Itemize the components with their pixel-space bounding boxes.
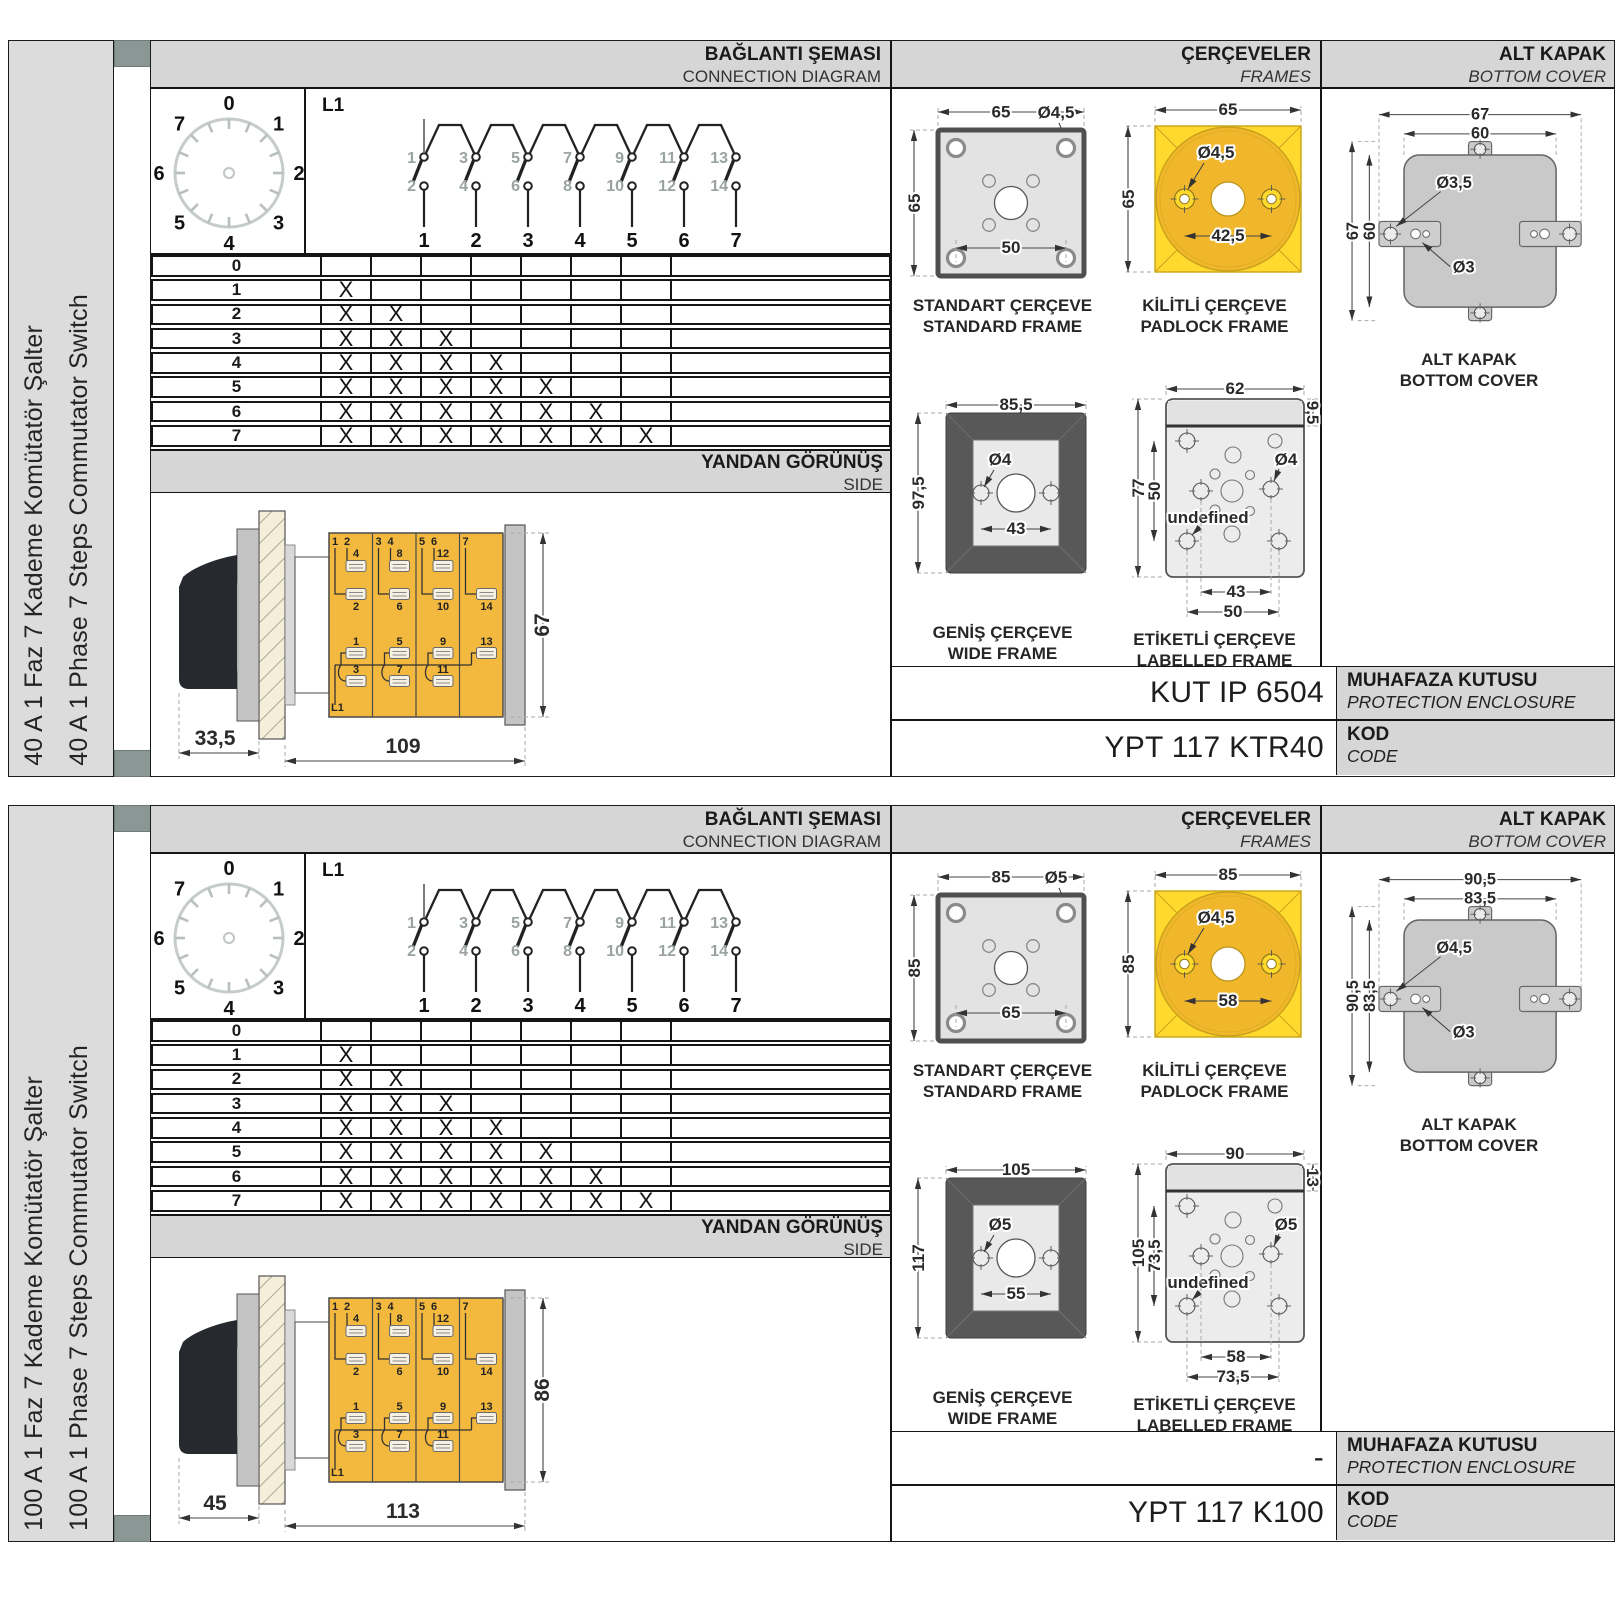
step-cell: X <box>370 354 420 372</box>
step-cell <box>620 1168 670 1186</box>
svg-text:6: 6 <box>396 1366 402 1378</box>
svg-text:Ø3: Ø3 <box>1453 1023 1475 1041</box>
product-name-en: 100 A 1 Phase 7 Steps Commutator Switch <box>65 1045 94 1531</box>
step-cell: X <box>520 403 570 421</box>
svg-text:90,5: 90,5 <box>1464 870 1496 888</box>
enclosure-row: KUT IP 6504 MUHAFAZA KUTUSU PROTECTION E… <box>891 667 1615 721</box>
svg-text:1: 1 <box>332 1301 338 1313</box>
wide-frame-block: 85,597,5Ø443 GENİŞ ÇERÇEVEWIDE FRAME <box>896 391 1109 664</box>
svg-text:62: 62 <box>1226 379 1245 398</box>
switch-dial: 01234567 <box>151 89 306 253</box>
step-row: 5XXXXX <box>151 376 891 398</box>
step-row: 1X <box>151 279 891 301</box>
circuit-schematic: L112134256378491051112613147 <box>306 89 891 253</box>
caption-padlock-en: PADLOCK FRAME <box>1108 1081 1321 1102</box>
svg-text:6: 6 <box>431 536 437 548</box>
caption-standard-tr: STANDART ÇERÇEVE <box>896 295 1109 316</box>
header-connection: BAĞLANTI ŞEMASI CONNECTION DIAGRAM <box>151 41 891 89</box>
svg-text:5: 5 <box>174 978 185 1000</box>
svg-text:L1: L1 <box>322 95 345 116</box>
step-cell: X <box>320 1071 370 1089</box>
steps-table: 01X2XX3XXX4XXXX5XXXXX6XXXXXX7XXXXXXX <box>151 1020 891 1214</box>
side-view-band-tr: YANDAN GÖRÜNÜŞ <box>151 452 883 474</box>
step-cell <box>620 1071 670 1089</box>
caption-wide-en: WIDE FRAME <box>896 643 1109 664</box>
svg-text:85: 85 <box>905 959 924 978</box>
step-cell: X <box>620 1192 670 1210</box>
wide-frame-svg: 85,597,5Ø443 <box>896 391 1111 615</box>
step-cell: X <box>520 378 570 396</box>
code-row: YPT 117 K100 KOD CODE <box>891 1486 1615 1540</box>
step-cell-empty <box>670 1022 889 1040</box>
svg-text:L1: L1 <box>331 1467 344 1479</box>
step-cell: X <box>620 427 670 445</box>
step-cell-empty <box>670 378 889 396</box>
step-cell <box>520 1119 570 1137</box>
step-cell <box>570 306 620 324</box>
svg-text:5: 5 <box>396 636 402 648</box>
bottom-cover-svg: 90,583,590,583,5Ø4,5Ø3 <box>1327 864 1611 1107</box>
step-label: 6 <box>153 1168 320 1186</box>
svg-text:Ø3,5: Ø3,5 <box>1436 174 1471 192</box>
svg-text:3: 3 <box>459 915 468 932</box>
step-cell: X <box>470 1192 520 1210</box>
svg-text:6: 6 <box>678 995 689 1017</box>
code-label-en: CODE <box>1347 1511 1615 1532</box>
svg-text:7: 7 <box>174 114 185 136</box>
step-cell-empty <box>670 330 889 348</box>
side-view-drawing: 12421334865756121091171413L18645113 <box>151 1258 891 1541</box>
step-cell: X <box>320 330 370 348</box>
caption-wide-en: WIDE FRAME <box>896 1408 1109 1429</box>
bottom-cover-block: 67606760Ø3,5Ø3 ALT KAPAKBOTTOM COVER <box>1327 99 1611 391</box>
svg-text:85: 85 <box>1119 955 1138 974</box>
step-label: 0 <box>153 257 320 275</box>
svg-text:3: 3 <box>459 150 468 167</box>
code-label: KOD CODE <box>1336 721 1615 775</box>
header-connection: BAĞLANTI ŞEMASI CONNECTION DIAGRAM <box>151 806 891 854</box>
svg-text:Ø4,5: Ø4,5 <box>1038 103 1075 122</box>
svg-text:undefined: undefined <box>1167 508 1248 527</box>
step-cell: X <box>470 378 520 396</box>
side-view-band-en: SIDE <box>151 1240 883 1260</box>
svg-text:8: 8 <box>396 1313 402 1325</box>
svg-text:4: 4 <box>459 178 468 195</box>
standard-frame-block: 85Ø58565 STANDART ÇERÇEVESTANDARD FRAME <box>896 861 1109 1102</box>
svg-text:L1: L1 <box>331 702 344 714</box>
svg-text:8: 8 <box>563 178 572 195</box>
svg-text:90,5: 90,5 <box>1344 980 1362 1012</box>
step-cell <box>620 330 670 348</box>
step-row: 6XXXXXX <box>151 401 891 423</box>
step-cell <box>520 1046 570 1064</box>
svg-text:undefined: undefined <box>1167 1273 1248 1292</box>
svg-text:2: 2 <box>344 536 350 548</box>
svg-text:6: 6 <box>511 178 520 195</box>
svg-text:117: 117 <box>909 1244 928 1271</box>
step-cell: X <box>520 1143 570 1161</box>
step-cell-empty <box>670 1119 889 1137</box>
caption-standard-tr: STANDART ÇERÇEVE <box>896 1060 1109 1081</box>
step-cell: X <box>470 354 520 372</box>
side-view-svg: 12421334865756121091171413L16733,5109 <box>151 493 891 776</box>
step-cell-empty <box>670 1168 889 1186</box>
svg-text:4: 4 <box>223 233 235 253</box>
svg-text:12: 12 <box>658 943 676 960</box>
caption-cover-en: BOTTOM COVER <box>1327 370 1611 391</box>
step-cell: X <box>470 1168 520 1186</box>
step-cell <box>520 1095 570 1113</box>
svg-text:67: 67 <box>531 613 554 636</box>
header-cover-tr: ALT KAPAK <box>1321 44 1606 66</box>
svg-text:9: 9 <box>440 636 446 648</box>
svg-text:50: 50 <box>1145 482 1164 501</box>
circuit-svg: L112134256378491051112613147 <box>306 854 889 1018</box>
step-cell <box>620 257 670 275</box>
step-cell: X <box>570 1192 620 1210</box>
step-cell <box>570 1071 620 1089</box>
step-cell-empty <box>670 1071 889 1089</box>
step-cell <box>620 1119 670 1137</box>
svg-text:13: 13 <box>480 1401 492 1413</box>
step-cell <box>570 281 620 299</box>
step-cell <box>420 1046 470 1064</box>
step-row: 4XXXX <box>151 1117 891 1139</box>
svg-text:7: 7 <box>462 1301 468 1313</box>
step-row: 6XXXXXX <box>151 1166 891 1188</box>
svg-text:43: 43 <box>1227 582 1246 601</box>
step-cell <box>320 1022 370 1040</box>
svg-text:90: 90 <box>1226 1144 1245 1163</box>
step-cell: X <box>320 1168 370 1186</box>
step-label: 2 <box>153 1071 320 1089</box>
side-view-band: YANDAN GÖRÜNÜŞ SIDE <box>151 449 891 493</box>
product-side-panel: 100 A 1 Faz 7 Kademe Komütatör Şalter 10… <box>8 805 114 1542</box>
svg-text:5: 5 <box>419 536 425 548</box>
code-value: YPT 117 K100 <box>891 1486 1336 1540</box>
header-connection-en: CONNECTION DIAGRAM <box>151 832 881 852</box>
svg-text:6: 6 <box>153 163 164 185</box>
svg-text:67: 67 <box>1344 222 1362 240</box>
step-cell: X <box>320 1192 370 1210</box>
step-cell <box>620 281 670 299</box>
step-label: 1 <box>153 1046 320 1064</box>
svg-text:55: 55 <box>1007 1284 1026 1303</box>
step-cell <box>420 257 470 275</box>
step-cell: X <box>320 403 370 421</box>
step-cell: X <box>370 427 420 445</box>
step-label: 7 <box>153 427 320 445</box>
bottom-cover-svg: 67606760Ø3,5Ø3 <box>1327 99 1611 342</box>
svg-text:67: 67 <box>1471 105 1489 123</box>
svg-text:7: 7 <box>396 1429 402 1441</box>
enclosure-label: MUHAFAZA KUTUSU PROTECTION ENCLOSURE <box>1336 1432 1615 1484</box>
svg-text:6: 6 <box>431 1301 437 1313</box>
svg-text:65: 65 <box>1219 100 1238 119</box>
step-cell: X <box>370 1119 420 1137</box>
step-label: 6 <box>153 403 320 421</box>
step-cell <box>570 330 620 348</box>
svg-text:10: 10 <box>606 943 624 960</box>
step-cell: X <box>370 403 420 421</box>
bottom-cover-drawing: 90,583,590,583,5Ø4,5Ø3 <box>1327 864 1611 1112</box>
step-cell <box>620 1022 670 1040</box>
step-cell: X <box>370 378 420 396</box>
step-cell <box>470 1095 520 1113</box>
product-side-panel: 40 A 1 Faz 7 Kademe Komütatör Şalter 40 … <box>8 40 114 777</box>
code-value: YPT 117 KTR40 <box>891 721 1336 775</box>
code-row: YPT 117 KTR40 KOD CODE <box>891 721 1615 775</box>
header-connection-tr: BAĞLANTI ŞEMASI <box>151 809 881 831</box>
svg-text:73,5: 73,5 <box>1216 1367 1249 1386</box>
step-cell <box>570 378 620 396</box>
step-cell <box>620 1095 670 1113</box>
connection-diagram-row: 01234567 L112134256378491051112613147 <box>151 854 891 1020</box>
standard-frame-block: 65Ø4,56550 STANDART ÇERÇEVESTANDARD FRAM… <box>896 96 1109 337</box>
labelled-frame-svg: 901310573,5Ø5undefined5873,5 <box>1108 1142 1323 1387</box>
labelled-frame-block: 629,57750Ø4undefined4350 ETİKETLİ ÇERÇEV… <box>1108 377 1321 671</box>
step-cell <box>470 281 520 299</box>
svg-text:Ø4: Ø4 <box>989 450 1012 469</box>
step-cell: X <box>370 1143 420 1161</box>
step-row: 3XXX <box>151 328 891 350</box>
switch-dial: 01234567 <box>151 854 306 1018</box>
corner-marker <box>114 1515 151 1542</box>
svg-text:3: 3 <box>522 230 533 252</box>
svg-text:2: 2 <box>407 178 416 195</box>
padlock-frame-block: 6565Ø4,542,5 KİLİTLİ ÇERÇEVEPADLOCK FRAM… <box>1108 96 1321 337</box>
dial-svg: 01234567 <box>151 89 306 253</box>
svg-text:4: 4 <box>387 536 394 548</box>
svg-text:1: 1 <box>353 1401 359 1413</box>
svg-text:2: 2 <box>407 943 416 960</box>
padlock-frame-svg: 6565Ø4,542,5 <box>1108 96 1323 288</box>
svg-text:4: 4 <box>459 943 468 960</box>
svg-text:10: 10 <box>437 1366 449 1378</box>
caption-cover-tr: ALT KAPAK <box>1327 1114 1611 1135</box>
bottom-cover-drawing: 67606760Ø3,5Ø3 <box>1327 99 1611 347</box>
svg-text:6: 6 <box>678 230 689 252</box>
svg-text:11: 11 <box>437 664 449 676</box>
svg-text:3: 3 <box>273 978 284 1000</box>
svg-text:7: 7 <box>462 536 468 548</box>
step-cell-empty <box>670 354 889 372</box>
svg-text:3: 3 <box>375 1301 381 1313</box>
code-rows: - MUHAFAZA KUTUSU PROTECTION ENCLOSURE Y… <box>891 1431 1615 1541</box>
step-cell: X <box>320 427 370 445</box>
svg-text:14: 14 <box>710 178 728 195</box>
step-cell: X <box>320 1046 370 1064</box>
step-cell <box>520 306 570 324</box>
svg-text:2: 2 <box>470 995 481 1017</box>
svg-text:7: 7 <box>174 879 185 901</box>
step-cell <box>370 257 420 275</box>
step-label: 7 <box>153 1192 320 1210</box>
step-cell: X <box>470 403 520 421</box>
step-cell-empty <box>670 306 889 324</box>
step-cell: X <box>470 1143 520 1161</box>
step-row: 0 <box>151 255 891 277</box>
step-row: 2XX <box>151 304 891 326</box>
svg-text:50: 50 <box>1002 238 1021 257</box>
svg-text:1: 1 <box>332 536 338 548</box>
code-label: KOD CODE <box>1336 1486 1615 1540</box>
svg-text:9: 9 <box>440 1401 446 1413</box>
product-name-en: 40 A 1 Phase 7 Steps Commutator Switch <box>65 294 94 766</box>
svg-text:1: 1 <box>407 150 416 167</box>
svg-text:7: 7 <box>730 995 741 1017</box>
svg-text:2: 2 <box>353 1366 359 1378</box>
step-cell <box>470 330 520 348</box>
step-cell <box>370 1046 420 1064</box>
svg-text:L1: L1 <box>322 860 345 881</box>
svg-text:3: 3 <box>375 536 381 548</box>
bottom-cover-block: 90,583,590,583,5Ø4,5Ø3 ALT KAPAKBOTTOM C… <box>1327 864 1611 1156</box>
svg-text:14: 14 <box>480 601 493 613</box>
header-cover-en: BOTTOM COVER <box>1321 67 1606 87</box>
step-cell <box>370 1022 420 1040</box>
step-cell: X <box>320 354 370 372</box>
corner-marker <box>114 40 151 67</box>
svg-text:12: 12 <box>437 1313 449 1325</box>
step-cell <box>470 1022 520 1040</box>
step-label: 4 <box>153 354 320 372</box>
step-cell: X <box>570 1168 620 1186</box>
svg-text:1: 1 <box>407 915 416 932</box>
svg-text:Ø5: Ø5 <box>1045 868 1068 887</box>
svg-text:4: 4 <box>353 548 360 560</box>
product-name-tr: 40 A 1 Faz 7 Kademe Komütatör Şalter <box>20 325 49 766</box>
step-cell: X <box>470 427 520 445</box>
header-frames-en: FRAMES <box>891 832 1311 852</box>
standard-frame-drawing: 85Ø58565 <box>896 861 1109 1058</box>
svg-text:14: 14 <box>480 1366 493 1378</box>
svg-text:4: 4 <box>223 998 235 1018</box>
step-cell: X <box>420 1192 470 1210</box>
svg-text:Ø5: Ø5 <box>1275 1215 1298 1234</box>
caption-labelled-tr: ETİKETLİ ÇERÇEVE <box>1108 1394 1321 1415</box>
step-cell <box>620 1143 670 1161</box>
step-row: 5XXXXX <box>151 1141 891 1163</box>
svg-text:12: 12 <box>658 178 676 195</box>
step-cell <box>620 403 670 421</box>
enclosure-label: MUHAFAZA KUTUSU PROTECTION ENCLOSURE <box>1336 667 1615 719</box>
svg-text:5: 5 <box>419 1301 425 1313</box>
svg-text:58: 58 <box>1219 991 1238 1010</box>
svg-text:6: 6 <box>153 928 164 950</box>
header-frames: ÇERÇEVELER FRAMES <box>891 806 1321 854</box>
wide-frame-svg: 105117Ø555 <box>896 1156 1111 1380</box>
caption-wide-tr: GENİŞ ÇERÇEVE <box>896 1387 1109 1408</box>
svg-text:1: 1 <box>418 995 429 1017</box>
svg-text:7: 7 <box>563 915 572 932</box>
wide-frame-drawing: 85,597,5Ø443 <box>896 391 1109 620</box>
step-cell: X <box>320 306 370 324</box>
section-content: BAĞLANTI ŞEMASI CONNECTION DIAGRAM ÇERÇE… <box>150 805 1615 1542</box>
caption-wide-tr: GENİŞ ÇERÇEVE <box>896 622 1109 643</box>
step-cell <box>570 1095 620 1113</box>
code-label-en: CODE <box>1347 746 1615 767</box>
enclosure-label-tr: MUHAFAZA KUTUSU <box>1347 670 1615 692</box>
svg-text:12: 12 <box>437 548 449 560</box>
code-label-tr: KOD <box>1347 1489 1615 1511</box>
caption-padlock-tr: KİLİTLİ ÇERÇEVE <box>1108 1060 1321 1081</box>
svg-text:Ø4,5: Ø4,5 <box>1198 908 1235 927</box>
svg-text:33,5: 33,5 <box>195 727 236 750</box>
svg-text:6: 6 <box>396 601 402 613</box>
labelled-frame-drawing: 901310573,5Ø5undefined5873,5 <box>1108 1142 1321 1392</box>
labelled-frame-svg: 629,57750Ø4undefined4350 <box>1108 377 1323 622</box>
svg-text:7: 7 <box>396 664 402 676</box>
step-cell-empty <box>670 1046 889 1064</box>
caption-cover-en: BOTTOM COVER <box>1327 1135 1611 1156</box>
header-cover-en: BOTTOM COVER <box>1321 832 1606 852</box>
step-cell <box>420 281 470 299</box>
caption-standard-en: STANDARD FRAME <box>896 1081 1109 1102</box>
step-cell <box>470 257 520 275</box>
enclosure-value: KUT IP 6504 <box>891 667 1336 719</box>
step-cell: X <box>370 1095 420 1113</box>
step-cell-empty <box>670 257 889 275</box>
step-cell: X <box>320 1095 370 1113</box>
product-section-40a: 40 A 1 Faz 7 Kademe Komütatör Şalter 40 … <box>8 40 1615 777</box>
step-cell: X <box>520 1192 570 1210</box>
svg-text:Ø3: Ø3 <box>1453 258 1475 276</box>
enclosure-label-tr: MUHAFAZA KUTUSU <box>1347 1435 1615 1457</box>
svg-text:2: 2 <box>293 928 304 950</box>
header-frames-en: FRAMES <box>891 67 1311 87</box>
svg-text:43: 43 <box>1007 519 1026 538</box>
labelled-frame-block: 901310573,5Ø5undefined5873,5 ETİKETLİ ÇE… <box>1108 1142 1321 1436</box>
svg-text:13: 13 <box>1303 1168 1322 1187</box>
step-cell: X <box>520 427 570 445</box>
svg-text:Ø4: Ø4 <box>1275 450 1298 469</box>
svg-text:2: 2 <box>344 1301 350 1313</box>
step-cell <box>320 257 370 275</box>
caption-cover-tr: ALT KAPAK <box>1327 349 1611 370</box>
svg-text:3: 3 <box>273 213 284 235</box>
caption-standard-en: STANDARD FRAME <box>896 316 1109 337</box>
step-cell <box>620 306 670 324</box>
svg-text:1: 1 <box>353 636 359 648</box>
svg-text:60: 60 <box>1361 222 1379 240</box>
steps-table: 01X2XX3XXX4XXXX5XXXXX6XXXXXX7XXXXXXX <box>151 255 891 449</box>
padlock-frame-block: 8585Ø4,558 KİLİTLİ ÇERÇEVEPADLOCK FRAME <box>1108 861 1321 1102</box>
svg-text:9: 9 <box>615 915 624 932</box>
svg-text:3: 3 <box>353 664 359 676</box>
svg-text:3: 3 <box>353 1429 359 1441</box>
step-cell: X <box>420 354 470 372</box>
step-cell-empty <box>670 403 889 421</box>
step-cell <box>520 330 570 348</box>
svg-text:13: 13 <box>480 636 492 648</box>
step-cell: X <box>570 427 620 445</box>
step-cell: X <box>520 1168 570 1186</box>
circuit-schematic: L112134256378491051112613147 <box>306 854 891 1018</box>
step-label: 2 <box>153 306 320 324</box>
step-cell: X <box>370 1071 420 1089</box>
step-cell <box>520 1022 570 1040</box>
step-cell: X <box>420 1119 470 1137</box>
svg-text:65: 65 <box>905 194 924 213</box>
svg-text:13: 13 <box>710 150 728 167</box>
svg-text:14: 14 <box>710 943 728 960</box>
svg-text:2: 2 <box>353 601 359 613</box>
caption-padlock-tr: KİLİTLİ ÇERÇEVE <box>1108 295 1321 316</box>
step-row: 3XXX <box>151 1093 891 1115</box>
svg-text:83,5: 83,5 <box>1361 980 1379 1012</box>
step-cell: X <box>420 1143 470 1161</box>
